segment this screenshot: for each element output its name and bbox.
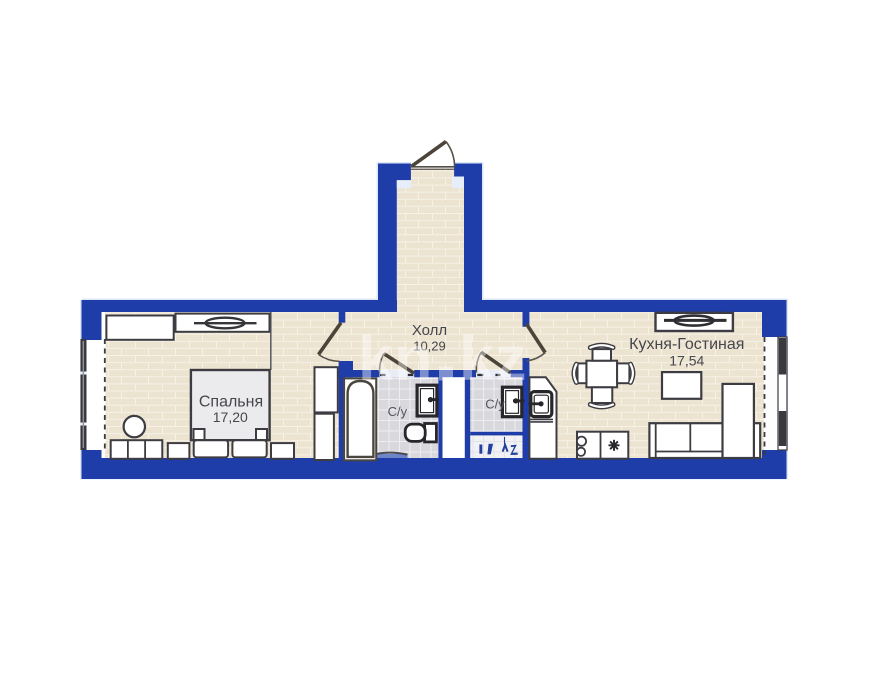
svg-text:kz: kz: [459, 324, 528, 394]
svg-text:С/у: С/у: [485, 397, 505, 412]
svg-text:С/у: С/у: [388, 404, 408, 419]
svg-text:Спальня: Спальня: [199, 394, 263, 411]
svg-text:17,20: 17,20: [213, 409, 248, 425]
svg-text:17,54: 17,54: [669, 353, 704, 369]
svg-text:Кухня-Гостиная: Кухня-Гостиная: [629, 336, 744, 353]
svg-text:kn: kn: [358, 324, 434, 394]
